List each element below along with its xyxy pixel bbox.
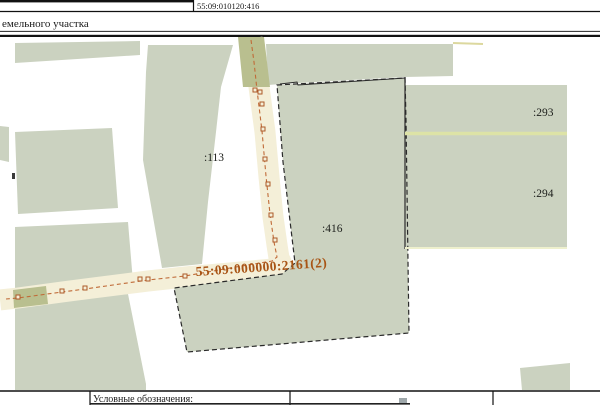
parcel-shape-left-sliver[interactable] bbox=[0, 126, 9, 162]
map-top-border bbox=[0, 35, 600, 37]
parcel-label-113: :113 bbox=[204, 152, 224, 164]
sliver-line-topright bbox=[453, 43, 483, 44]
edge-cut-mark bbox=[12, 173, 15, 179]
cadastral-map-view: 55:09:010120:416 емельного участка bbox=[0, 0, 600, 405]
header-top-border bbox=[0, 0, 193, 2]
parcel-label-293: :293 bbox=[533, 107, 554, 119]
parcel-label-294: :294 bbox=[533, 188, 554, 200]
parcel-shape-left-square[interactable] bbox=[15, 128, 118, 214]
parcel-label-416: :416 bbox=[322, 223, 343, 235]
header-subtitle: емельного участка bbox=[2, 18, 89, 30]
header-cadastral-number: 55:09:010120:416 bbox=[197, 1, 259, 11]
parcel-shape-bottom-left[interactable] bbox=[15, 294, 146, 390]
